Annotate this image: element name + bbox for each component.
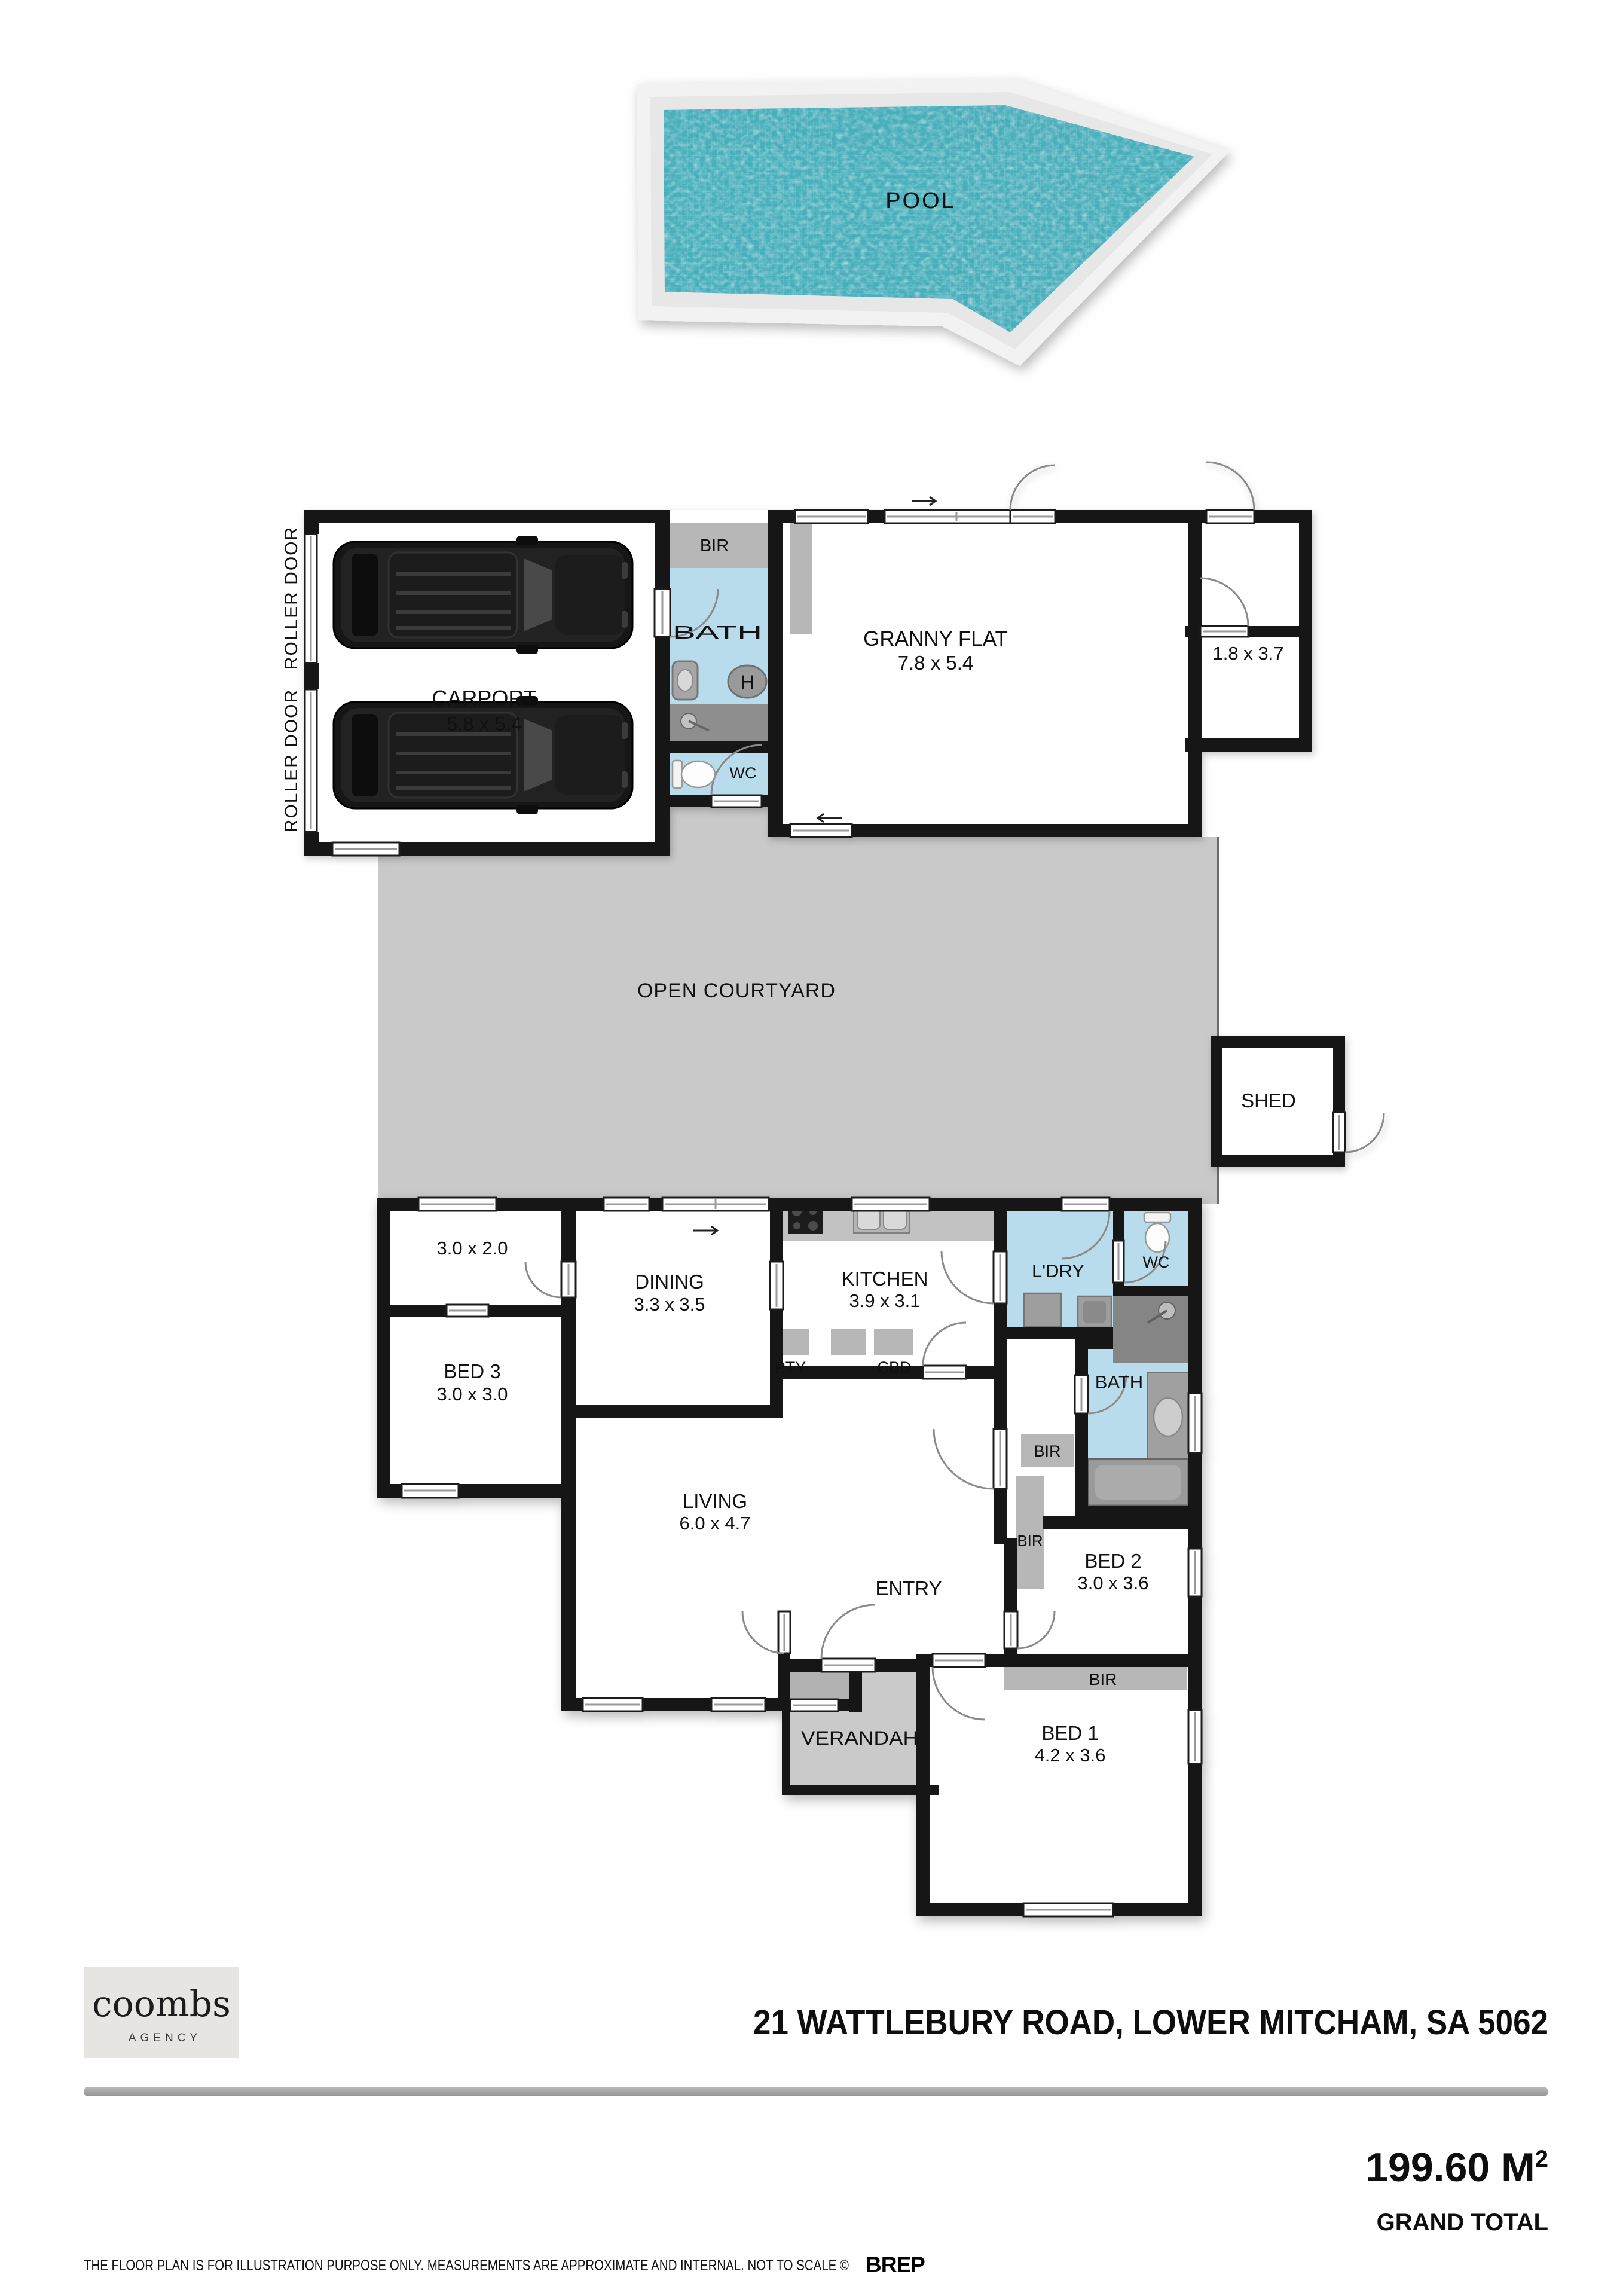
brep-logo: BREP	[866, 2252, 925, 2277]
laundry-tub-icon	[1078, 1296, 1111, 1327]
bed3-dims: 3.0 x 3.0	[437, 1384, 508, 1405]
front-door-bar	[821, 1659, 875, 1672]
dining-kitchen-servery	[770, 1262, 783, 1309]
disclaimer: THE FLOOR PLAN IS FOR ILLUSTRATION PURPO…	[84, 2257, 849, 2274]
store-north-window	[418, 1198, 496, 1211]
main-house	[377, 1198, 1202, 1916]
shed-door-bar	[1333, 1112, 1345, 1152]
bath-door-bar	[1075, 1375, 1088, 1413]
ensuite-wc-label: WC	[730, 764, 757, 782]
hall-bir-label: BIR	[1034, 1442, 1060, 1460]
shed-door-arc	[1345, 1113, 1384, 1152]
footer-divider	[84, 2087, 1548, 2096]
address: 21 WATTLEBURY ROAD, LOWER MITCHAM, SA 50…	[753, 2003, 1548, 2042]
bath-east-window	[1188, 1393, 1202, 1453]
bed1-door-bar	[933, 1654, 985, 1667]
kitchen-laundry-door-bar	[994, 1251, 1007, 1303]
kitchen-south-door-bar	[923, 1366, 966, 1379]
area-value: 199.60 M	[1365, 2145, 1535, 2190]
footer: coombs AGENCY 21 WATTLEBURY ROAD, LOWER …	[84, 1967, 1548, 2277]
carport-dims: 5.8 x 5.4	[447, 713, 522, 735]
roller-door-top	[305, 534, 317, 663]
wc-door-bar	[1113, 1241, 1124, 1283]
roller-door-label-1: ROLLER DOOR	[282, 526, 301, 670]
bed3-label: BED 3	[444, 1360, 500, 1382]
living-label: LIVING	[683, 1490, 747, 1512]
bed2-door-bar	[1004, 1611, 1017, 1648]
bed1-label: BED 1	[1041, 1722, 1098, 1744]
verandah-label: VERANDAH	[801, 1727, 918, 1749]
granny-entry-door-arc	[1010, 465, 1055, 510]
roller-door-label-2: ROLLER DOOR	[282, 689, 301, 832]
bed1-south-window	[1023, 1903, 1113, 1916]
bed2-bir-label: BIR	[1017, 1532, 1043, 1550]
cupboard-label: CBD	[877, 1358, 911, 1376]
dining-dims: 3.3 x 3.5	[634, 1294, 705, 1315]
granny-north-slider	[885, 510, 1028, 523]
main-shower	[1113, 1296, 1188, 1363]
floorplan-page: POOL OPEN COURTYARD	[0, 0, 1623, 2296]
agency-logo-name: coombs	[92, 1983, 231, 2025]
pool-label: POOL	[885, 188, 956, 213]
roller-door-bottom	[305, 689, 317, 832]
wc-label: WC	[1143, 1253, 1170, 1271]
grand-total-area: 199.60 M2	[1365, 2145, 1548, 2190]
car-top	[334, 536, 632, 654]
ensuite-toilet-icon	[673, 761, 715, 788]
granny-north-window	[795, 510, 868, 523]
ensuite-wc-door-bar	[711, 795, 762, 807]
ensuite-bir-label: BIR	[700, 536, 729, 555]
floorplan-canvas: POOL OPEN COURTYARD	[0, 0, 1623, 2296]
washer-icon	[1024, 1293, 1061, 1327]
courtyard-label: OPEN COURTYARD	[637, 979, 836, 1002]
carport-south-window	[332, 842, 399, 856]
bed3-divider-opening	[447, 1305, 488, 1317]
bed2-dims: 3.0 x 3.6	[1078, 1573, 1149, 1593]
dining-north-window	[604, 1198, 649, 1211]
dining-north-slider	[662, 1198, 769, 1211]
living-door-bar	[778, 1611, 790, 1653]
shed-label: SHED	[1241, 1089, 1296, 1112]
pool: POOL	[634, 78, 1237, 371]
porch-step	[790, 1668, 849, 1699]
store-door-bar	[561, 1262, 576, 1297]
bed1-dims: 4.2 x 3.6	[1035, 1745, 1106, 1766]
bed3-south-window	[402, 1484, 459, 1498]
carport-label: CARPORT	[432, 686, 536, 710]
ensuite-bath-label: BATH	[673, 622, 762, 643]
kitchen-label: KITCHEN	[842, 1268, 928, 1290]
shed	[1211, 1036, 1384, 1167]
ensuite-bath-door-bar	[655, 589, 670, 637]
vanity-basin	[1154, 1398, 1182, 1436]
granny-robe	[790, 523, 812, 634]
laundry-label: L'DRY	[1032, 1260, 1084, 1281]
side-room-entry-door-arc	[1206, 462, 1254, 510]
side-room-entry-door-bar	[1206, 510, 1254, 523]
hall-wing-door-bar	[994, 1429, 1007, 1489]
grand-total-label: GRAND TOTAL	[1377, 2209, 1548, 2236]
kitchen-north-window	[852, 1198, 930, 1211]
granny-flat-dims: 7.8 x 5.4	[898, 652, 974, 674]
living-dims: 6.0 x 4.7	[680, 1513, 751, 1534]
area-superscript: 2	[1535, 2146, 1548, 2172]
bath-label: BATH	[1095, 1372, 1143, 1393]
bed1-east-window	[1188, 1710, 1202, 1764]
cupboard-box	[874, 1329, 913, 1355]
dining-label: DINING	[635, 1271, 704, 1293]
hot-water-label: H	[740, 671, 754, 693]
granny-flat-label: GRANNY FLAT	[863, 627, 1008, 651]
living-south-window-2	[711, 1698, 765, 1711]
bed2-label: BED 2	[1084, 1550, 1141, 1572]
store-dims: 3.0 x 2.0	[437, 1238, 508, 1259]
courtyard-floor	[378, 837, 1219, 1204]
living-south-window-1	[583, 1698, 643, 1711]
wc-toilet-icon	[1144, 1213, 1170, 1252]
entry-label: ENTRY	[875, 1577, 942, 1599]
verandah-rail	[790, 1699, 838, 1711]
granny-entry-door-bar	[1010, 510, 1055, 523]
bed1-bir-label: BIR	[1089, 1670, 1117, 1689]
granny-south-window	[790, 824, 852, 837]
side-room-dims: 1.8 x 3.7	[1213, 643, 1284, 664]
upper-block	[304, 462, 1312, 856]
bed2-east-window	[1188, 1549, 1202, 1596]
cabinet-box	[831, 1329, 866, 1355]
kitchen-dims: 3.9 x 3.1	[849, 1290, 921, 1311]
pantry-label: PTY	[775, 1358, 806, 1376]
granny-flat-floor	[768, 510, 1202, 837]
laundry-north-door-bar	[1062, 1198, 1109, 1211]
open-courtyard: OPEN COURTYARD	[378, 807, 1219, 1204]
side-room-divider-door-bar	[1200, 626, 1248, 637]
agency-logo-sub: AGENCY	[129, 2032, 201, 2044]
